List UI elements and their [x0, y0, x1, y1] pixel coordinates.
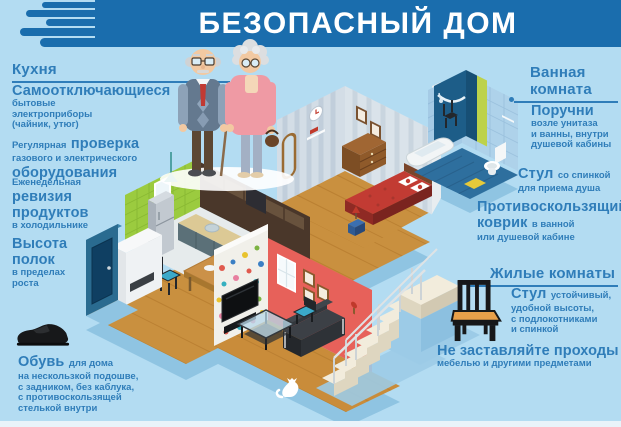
- wall-clock: [310, 104, 323, 123]
- chair-icon: [447, 280, 505, 342]
- tv: [222, 279, 258, 334]
- banner-background: БЕЗОПАСНЫЙ ДОМ: [95, 0, 621, 47]
- handbag: [266, 131, 278, 135]
- kitchen-tip-fridge-audit: Еженедельная ревизия продуктов в холодил…: [12, 178, 89, 231]
- grandma: [225, 39, 279, 178]
- page-title: БЕЗОПАСНЫЙ ДОМ: [95, 0, 621, 47]
- shoe-icon: [14, 318, 72, 350]
- kitchen-tip-inspection: Регулярная проверка газового и электриче…: [12, 136, 139, 181]
- cooker-hood: [246, 185, 266, 214]
- kitchen-dark-wall: [200, 162, 310, 262]
- polka-dot-wall: [214, 224, 268, 346]
- window: [278, 255, 295, 291]
- staircase: [316, 249, 459, 406]
- sofa: [283, 299, 345, 357]
- bottom-edge-strip: [0, 421, 621, 427]
- banner-brush-drip: [42, 2, 102, 8]
- glasses: [242, 59, 250, 67]
- sink: [205, 224, 219, 232]
- bathroom-tip-shower-chair: Стул со спинкой для приема душа: [518, 166, 610, 195]
- bed: [345, 163, 432, 225]
- picture-frame: [371, 122, 380, 138]
- banner-brush-drip: [46, 19, 102, 26]
- banner-brush-drip: [40, 38, 102, 47]
- stair-railing: [334, 268, 421, 384]
- red-wall: [268, 238, 372, 372]
- banner-brush-drip: [26, 10, 102, 17]
- cat-icon: [277, 378, 299, 397]
- bath-mat: [464, 178, 486, 189]
- living-tip-passages: Не заставляйте проходы мебелью и другими…: [437, 343, 619, 370]
- hall-cabinet: [112, 228, 162, 305]
- living-tip-chair: Стул устойчивый, удобной высоты, с подло…: [511, 286, 611, 336]
- divider-wall: [432, 82, 441, 214]
- nightstand: [348, 206, 365, 236]
- kitchen-heading: Кухня: [12, 61, 230, 83]
- bedroom-right-wall: [345, 86, 432, 214]
- bathroom-heading-line1: Ванная: [530, 64, 618, 81]
- picture-frame: [357, 107, 366, 123]
- toilet: [484, 142, 506, 175]
- tip-text: Самоотключающиеся: [12, 83, 170, 99]
- bathroom-heading: Ванная комната: [514, 64, 618, 103]
- kitchen-window: [155, 177, 170, 206]
- picture-frame: [304, 288, 314, 305]
- kitchen-heading-label: Кухня: [12, 61, 57, 78]
- leader-dot: [509, 97, 514, 102]
- fridge: [148, 191, 174, 258]
- banner-brush-drip: [20, 28, 102, 36]
- shower-cabin: [434, 70, 487, 152]
- pendant-lamp: [164, 152, 178, 182]
- footwear-tip: Обувь для дома на нескользкой подошве, с…: [18, 354, 138, 414]
- kitchen-counter: [178, 214, 298, 291]
- armchair: [294, 296, 316, 324]
- dresser: [342, 133, 386, 177]
- kitchen-floor: [125, 207, 310, 300]
- bathroom-heading-line2: комната: [530, 81, 618, 98]
- coffee-table: [238, 310, 294, 350]
- dining-table: [158, 236, 260, 306]
- entry-door: [86, 224, 138, 326]
- picture-frame: [318, 285, 328, 302]
- title-banner: БЕЗОПАСНЫЙ ДОМ: [0, 0, 621, 47]
- bathtub: [406, 138, 453, 166]
- kitchen-tip-appliances: Самоотключающиеся бытовые электроприборы…: [12, 83, 170, 131]
- bathroom-tip-anti-slip-mat: Противоскользящий коврик в ванной или ду…: [477, 199, 621, 244]
- stove: [238, 246, 262, 258]
- bathroom: [368, 70, 518, 215]
- picture-frame: [304, 270, 314, 287]
- wall-lamp: [351, 300, 357, 309]
- bedroom-left-wall: [277, 86, 345, 205]
- kitchen-tip-shelf-height: Высота полок в пределах роста: [12, 236, 67, 289]
- bathroom-tip-grab-bars: Поручни возле унитаза и ванны, внутри ду…: [531, 103, 611, 151]
- mirror: [283, 132, 295, 180]
